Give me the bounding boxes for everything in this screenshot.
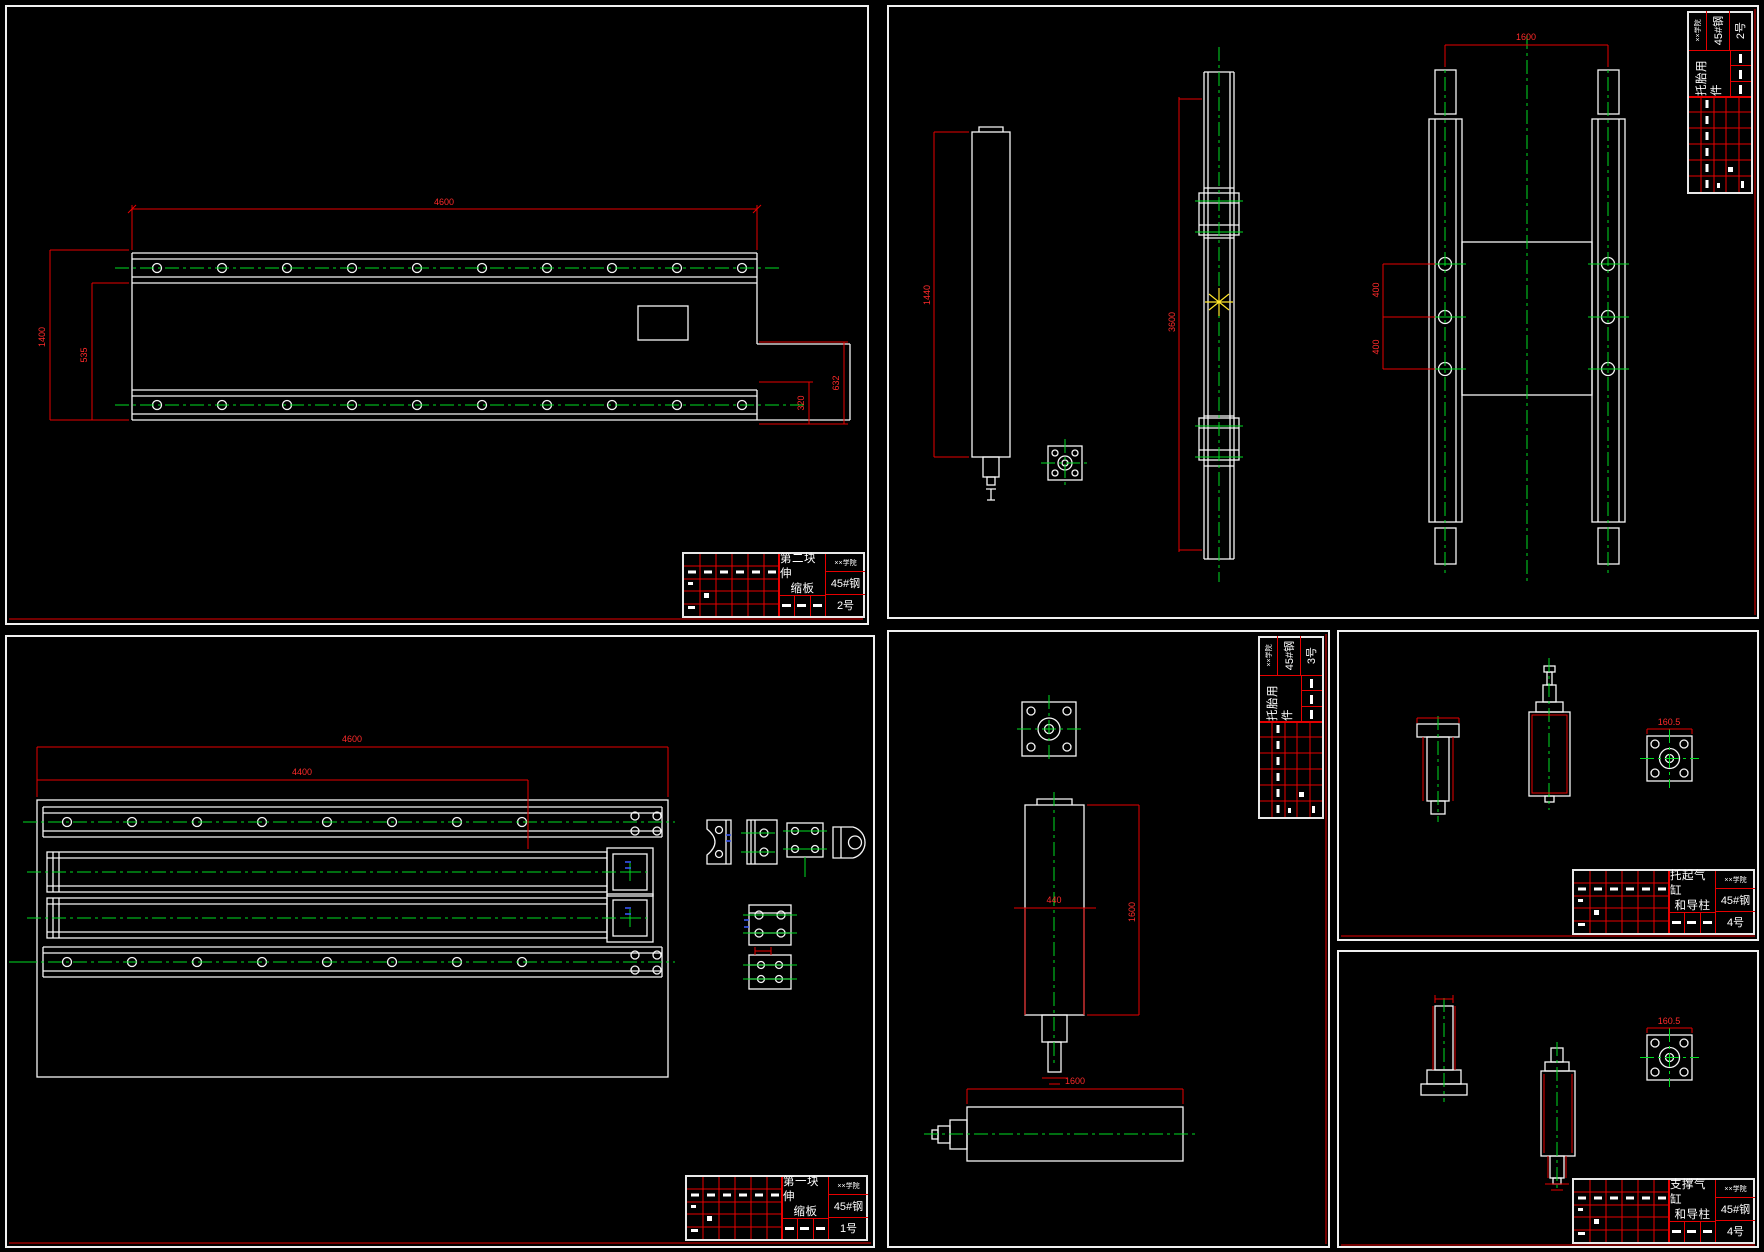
title-block: 支撑气缸 和导柱 ××学院 45#钢 4号 (1572, 1178, 1755, 1244)
sheet-number: 1号 (829, 1218, 868, 1238)
title-block-right-column: ××学院 45#钢 2号 (826, 554, 865, 616)
part-name-line1: 第二块伸 (780, 552, 825, 582)
title-block-mount: 托胎用件 ××学院 45#钢 2号 (1687, 11, 1753, 194)
part-name: 支撑气缸 和导柱 (1669, 1180, 1716, 1221)
school-name: ××学院 (1716, 1180, 1755, 1198)
dim-label: 1600 (1127, 902, 1137, 922)
dim-label: 3600 (1167, 312, 1177, 332)
school-name: ××学院 (1689, 11, 1707, 50)
title-block-mount: 第二块伸 缩板 ××学院 45#钢 2号 (682, 552, 865, 618)
material-label: 45#钢 (1278, 636, 1301, 675)
title-block-grid (687, 1177, 782, 1239)
sheet-number: 2号 (1730, 11, 1750, 50)
sheet-panel-tire-support-parts-b: 440 1600 1600 托胎用件 ××学院 45#钢 3号 (887, 630, 1330, 1248)
title-block-right-column: ××学院 45#钢 1号 (829, 1177, 868, 1239)
signature-cells (1669, 1221, 1716, 1242)
dim-label: 440 (1046, 895, 1061, 905)
title-block-right-column: ××学院 45#钢 4号 (1716, 871, 1755, 933)
centerlines (1438, 658, 1699, 822)
dimension-lines (934, 9, 1755, 615)
school-name: ××学院 (829, 1177, 868, 1195)
centerlines (1041, 35, 1629, 585)
sheet-panel-second-telescopic-plate: 4600 1400 535 632 320 第二块伸 缩板 ××学院 (5, 5, 869, 625)
signature-cells (1730, 50, 1751, 97)
dim-label: 400 (1371, 282, 1381, 297)
sheet-panel-first-telescopic-plate: 4600 4400 第一块伸 缩板 ××学院 45#钢 1号 (5, 635, 875, 1248)
plate-geometry (132, 253, 850, 420)
part-name-line1: 托胎用件 (1266, 676, 1296, 721)
signature-cells (1301, 675, 1322, 722)
material-label: 45#钢 (1716, 889, 1755, 912)
dim-label: 1600 (1065, 1076, 1085, 1086)
cad-canvas: { "colors": { "background": "#000000", "… (0, 0, 1764, 1252)
material-label: 45#钢 (1716, 1198, 1755, 1221)
part-name-line1: 第一块伸 (783, 1175, 828, 1205)
sheet-number: 4号 (1716, 1221, 1755, 1241)
material-label: 45#钢 (829, 1195, 868, 1218)
material-label: 45#钢 (1707, 11, 1730, 50)
dim-label: 4600 (342, 734, 362, 744)
title-block-right-column: ××学院 45#钢 3号 (1260, 636, 1322, 675)
title-block: 托胎用件 ××学院 45#钢 3号 (1258, 636, 1324, 819)
dim-label: 535 (79, 347, 89, 362)
material-label: 45#钢 (826, 572, 865, 595)
dim-label: 4400 (292, 767, 312, 777)
dim-label: 320 (796, 395, 806, 410)
title-block: 托起气缸 和导柱 ××学院 45#钢 4号 (1572, 869, 1755, 935)
dim-label: 160.5 (1658, 717, 1681, 727)
part-name: 托胎用件 (1260, 675, 1301, 722)
centerlines (115, 268, 807, 405)
title-block-right-column: ××学院 45#钢 4号 (1716, 1180, 1755, 1242)
part-name: 托起气缸 和导柱 (1669, 871, 1716, 912)
signature-cells (782, 1218, 829, 1239)
title-block-mount: 托胎用件 ××学院 45#钢 3号 (1258, 636, 1324, 819)
dim-label: 4600 (434, 197, 454, 207)
sheet-number: 2号 (826, 595, 865, 615)
school-name: ××学院 (1716, 871, 1755, 889)
title-block-grid (1574, 1180, 1669, 1242)
part-name: 托胎用件 (1689, 50, 1730, 97)
dimension-lines (9, 747, 871, 1243)
school-name: ××学院 (826, 554, 865, 572)
title-block-grid (1574, 871, 1669, 933)
title-block-grid (1260, 722, 1322, 817)
centerlines (9, 822, 827, 979)
plate-geometry (37, 800, 865, 1077)
dim-label: 400 (1371, 339, 1381, 354)
title-block-mount: 支撑气缸 和导柱 ××学院 45#钢 4号 (1572, 1178, 1755, 1244)
dim-label: 160.5 (1658, 1016, 1681, 1026)
sheet-panel-support-cylinder-guide-post: 160.5 支撑气缸 和导柱 ××学院 45#钢 4号 (1337, 950, 1759, 1248)
part-name-line1: 托胎用件 (1695, 51, 1725, 96)
title-block-mount: 第一块伸 缩板 ××学院 45#钢 1号 (685, 1175, 868, 1241)
sheet-panel-tire-support-parts-a: 1600 3600 1440 400 400 托胎用件 ××学院 (887, 5, 1759, 619)
part-name: 第二块伸 缩板 (779, 554, 826, 595)
signature-cells (779, 595, 826, 616)
title-block: 托胎用件 ××学院 45#钢 2号 (1687, 11, 1753, 194)
dim-label: 632 (831, 375, 841, 390)
sheet-panel-lifting-cylinder-guide-post: 160.5 托起气缸 和导柱 ××学院 45#钢 4号 (1337, 630, 1759, 941)
part-geometry (932, 702, 1183, 1161)
title-block-grid (1689, 97, 1751, 192)
title-block-mount: 托起气缸 和导柱 ××学院 45#钢 4号 (1572, 869, 1755, 935)
signature-cells (1669, 912, 1716, 933)
part-geometry (1417, 666, 1692, 814)
highlight-marks (1205, 288, 1233, 316)
school-name: ××学院 (1260, 636, 1278, 675)
drawing-second-telescopic-plate: 4600 1400 535 632 320 (7, 7, 867, 623)
title-block: 第一块伸 缩板 ××学院 45#钢 1号 (685, 1175, 868, 1241)
title-block: 第二块伸 缩板 ××学院 45#钢 2号 (682, 552, 865, 618)
sheet-number: 4号 (1716, 912, 1755, 932)
part-name: 第一块伸 缩板 (782, 1177, 829, 1218)
title-block-right-column: ××学院 45#钢 2号 (1689, 11, 1751, 50)
dim-label: 1400 (37, 327, 47, 347)
part-name-line1: 支撑气缸 (1670, 1178, 1715, 1208)
part-name-line1: 托起气缸 (1670, 869, 1715, 899)
sheet-number: 3号 (1301, 636, 1321, 675)
title-block-grid (684, 554, 779, 616)
drawing-first-telescopic-plate: 4600 4400 (7, 637, 873, 1246)
dim-label: 1440 (922, 285, 932, 305)
drawing-tire-support-parts-a: 1600 3600 1440 400 400 (889, 7, 1757, 617)
dim-label: 1600 (1516, 32, 1536, 42)
